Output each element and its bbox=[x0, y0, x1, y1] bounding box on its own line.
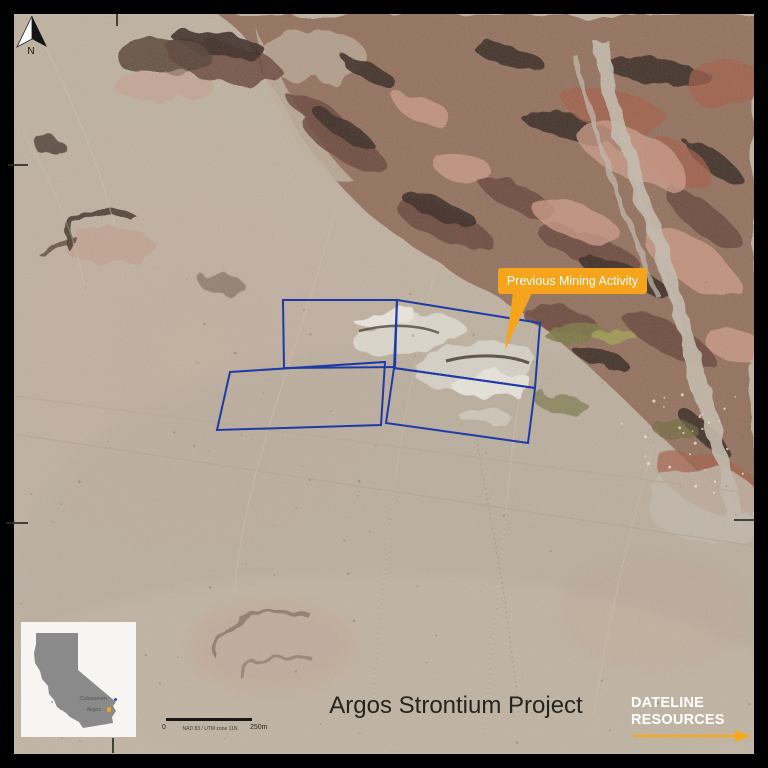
scale-zero-label: 0 bbox=[162, 724, 166, 731]
north-arrow: N bbox=[14, 14, 50, 58]
north-arrow-left-half bbox=[17, 16, 32, 47]
scale-bar-line bbox=[166, 718, 252, 721]
callout-previous-mining: Previous Mining Activity bbox=[498, 268, 647, 294]
inset-site-label-argos: Argos bbox=[49, 707, 101, 713]
map-title: Argos Strontium Project bbox=[329, 692, 582, 720]
graticule-tick-left-1 bbox=[8, 164, 28, 166]
california-outline bbox=[21, 622, 136, 737]
graticule-tick-bottom bbox=[112, 738, 114, 753]
company-logo: DATELINE RESOURCES bbox=[631, 695, 725, 728]
scale-datum-label: NAD 83 / UTM zone 11N bbox=[172, 726, 248, 732]
inset-site-dot-argos bbox=[107, 707, 112, 712]
graticule-tick-top bbox=[116, 14, 118, 26]
inset-location-map: Colosseum Argos bbox=[21, 622, 136, 737]
logo-line-2: RESOURCES bbox=[631, 712, 725, 729]
logo-line-1: DATELINE bbox=[631, 695, 725, 712]
california-shape bbox=[34, 633, 116, 728]
north-label: N bbox=[27, 46, 34, 57]
satellite-map: Previous Mining Activity Colosseum Argos… bbox=[14, 14, 754, 754]
inset-site-dot-colosseum bbox=[114, 698, 117, 701]
graticule-tick-left-2 bbox=[6, 522, 28, 524]
scale-bar: 0 NAD 83 / UTM zone 11N 250m bbox=[158, 717, 270, 735]
channel-island bbox=[51, 701, 53, 703]
north-arrow-right-half bbox=[32, 16, 47, 47]
map-frame: Previous Mining Activity Colosseum Argos… bbox=[0, 0, 768, 768]
logo-arrow-icon bbox=[631, 728, 753, 744]
inset-site-label-colosseum: Colosseum bbox=[55, 696, 107, 702]
graticule-tick-right bbox=[734, 519, 754, 521]
scale-max-label: 250m bbox=[250, 724, 268, 731]
callout-label: Previous Mining Activity bbox=[507, 274, 638, 288]
